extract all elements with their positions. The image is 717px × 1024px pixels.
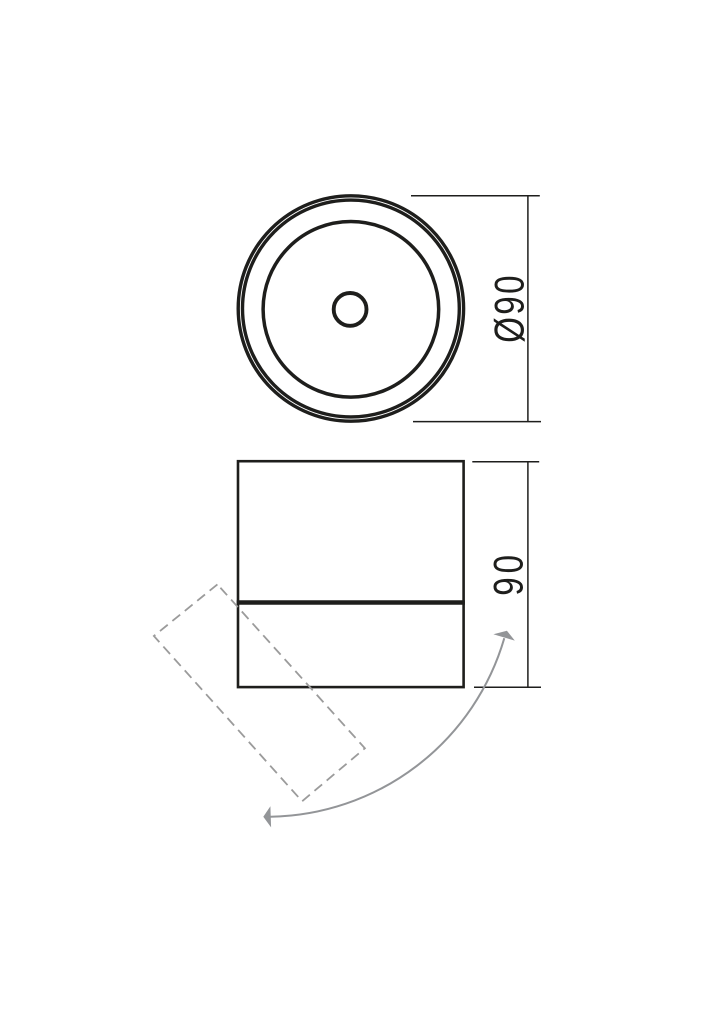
svg-text:Ø90: Ø90 [487, 273, 534, 343]
svg-text:90: 90 [486, 551, 533, 596]
